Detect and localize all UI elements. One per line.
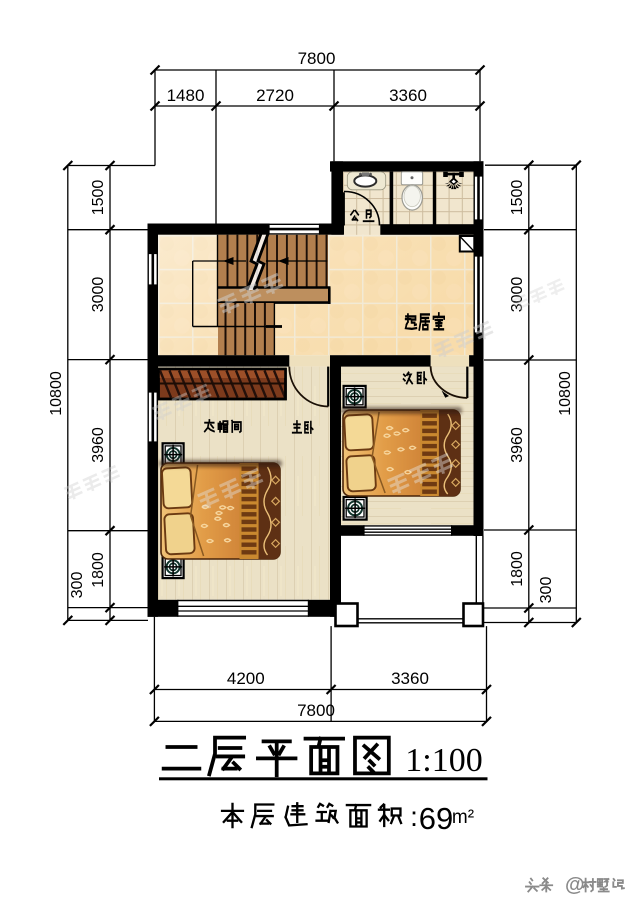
svg-text:3360: 3360: [391, 669, 429, 688]
svg-text:2720: 2720: [256, 86, 294, 105]
svg-text:3360: 3360: [389, 86, 427, 105]
svg-text:1500: 1500: [90, 180, 107, 216]
svg-text:7800: 7800: [298, 49, 336, 68]
svg-text:300: 300: [538, 577, 555, 604]
svg-text:1:100: 1:100: [405, 742, 482, 779]
svg-text:4200: 4200: [227, 669, 265, 688]
svg-text:10800: 10800: [557, 371, 574, 416]
svg-text:7800: 7800: [297, 701, 335, 720]
svg-text:69: 69: [419, 801, 453, 836]
svg-text:1480: 1480: [167, 86, 205, 105]
svg-text:1800: 1800: [509, 551, 526, 587]
svg-text:10800: 10800: [48, 371, 65, 416]
svg-text:1800: 1800: [90, 552, 107, 588]
svg-text:3000: 3000: [90, 277, 107, 313]
svg-text:1500: 1500: [509, 180, 526, 216]
svg-text:m²: m²: [452, 807, 474, 828]
svg-text:@: @: [565, 874, 585, 896]
svg-text:3960: 3960: [90, 427, 107, 463]
svg-text::: :: [410, 801, 418, 832]
svg-text:300: 300: [69, 572, 86, 599]
svg-text:3960: 3960: [509, 427, 526, 463]
